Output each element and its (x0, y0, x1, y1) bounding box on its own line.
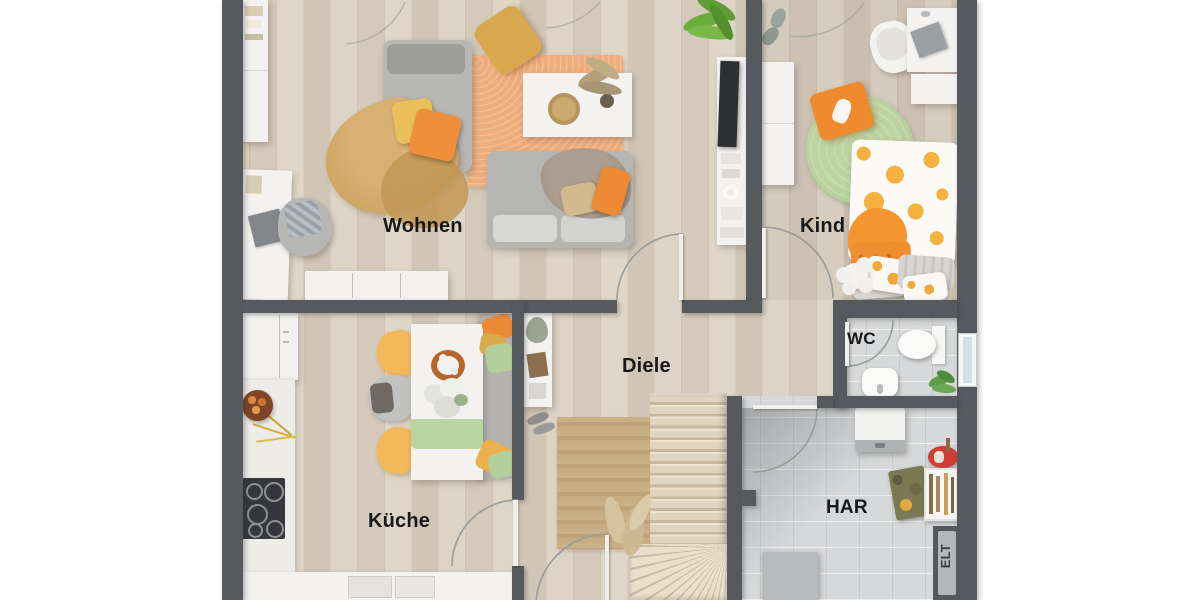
door-leaf-kueche (513, 500, 518, 566)
door-swing-arcs (0, 0, 1200, 600)
door-leaf-har (753, 405, 817, 409)
room-label-har: HAR (826, 497, 868, 519)
room-label-elt: ELT (938, 544, 953, 568)
room-label-diele: Diele (622, 355, 671, 378)
room-label-kueche: Küche (368, 510, 430, 533)
room-label-kind: Kind (800, 215, 845, 238)
floor-plan: Wohnen Kind Diele Küche WC HAR ELT (0, 0, 1200, 600)
room-label-wohnen: Wohnen (383, 215, 463, 238)
door-leaf-wohnen (679, 234, 683, 300)
door-leaf-kind (762, 228, 766, 298)
room-label-wc: WC (847, 329, 876, 349)
door-leaf-entry (605, 535, 609, 600)
